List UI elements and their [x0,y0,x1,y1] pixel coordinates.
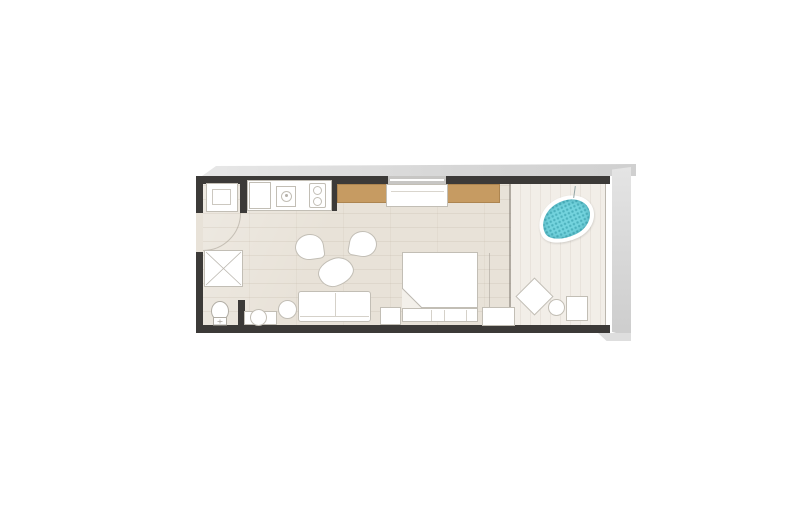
wall-bottom [196,325,610,333]
toilet [210,301,230,327]
burner-1 [313,186,322,195]
sofa-cushion-divider [335,293,336,317]
vanity-sink [250,309,267,326]
sink-faucet [285,194,288,197]
wall-stub-closet [240,176,247,213]
floor-entry-opening [196,213,203,252]
glass-divider [509,184,511,308]
bed-pillow-row [402,308,478,322]
pillow-divider-3 [466,310,467,321]
wall-left-upper [196,176,203,213]
slab-edge-top [202,164,636,176]
window-top [388,176,446,184]
bed-duvet-fold [402,288,422,308]
side-table [278,300,297,319]
fridge [249,182,271,209]
kitchen-sink [276,186,296,207]
terrace-chair [566,296,588,321]
nightstand-left [380,307,401,325]
wall-top-right [446,176,610,184]
terrace-edge-line [605,184,606,325]
terrace-table [548,299,565,316]
pillow-divider-1 [431,310,432,321]
floor-plan-page [0,0,797,516]
nightstand-right [482,307,515,326]
burner-2 [313,197,322,206]
slab-edge-bottom-right [598,333,631,341]
dresser-drawer-line [391,191,444,192]
sofa-seat-line [300,316,369,317]
shower-glazing-lines [205,251,242,286]
cooktop [309,183,326,208]
washer-inner-frame [212,189,231,205]
pillow-divider-2 [444,310,445,321]
washer [206,183,238,212]
curtain-line [489,253,490,308]
dresser [386,184,448,207]
slab-edge-right [612,167,631,337]
sofa [298,291,371,322]
window-glazing-line [390,179,444,181]
wall-left-lower [196,252,203,333]
shower [204,250,243,287]
